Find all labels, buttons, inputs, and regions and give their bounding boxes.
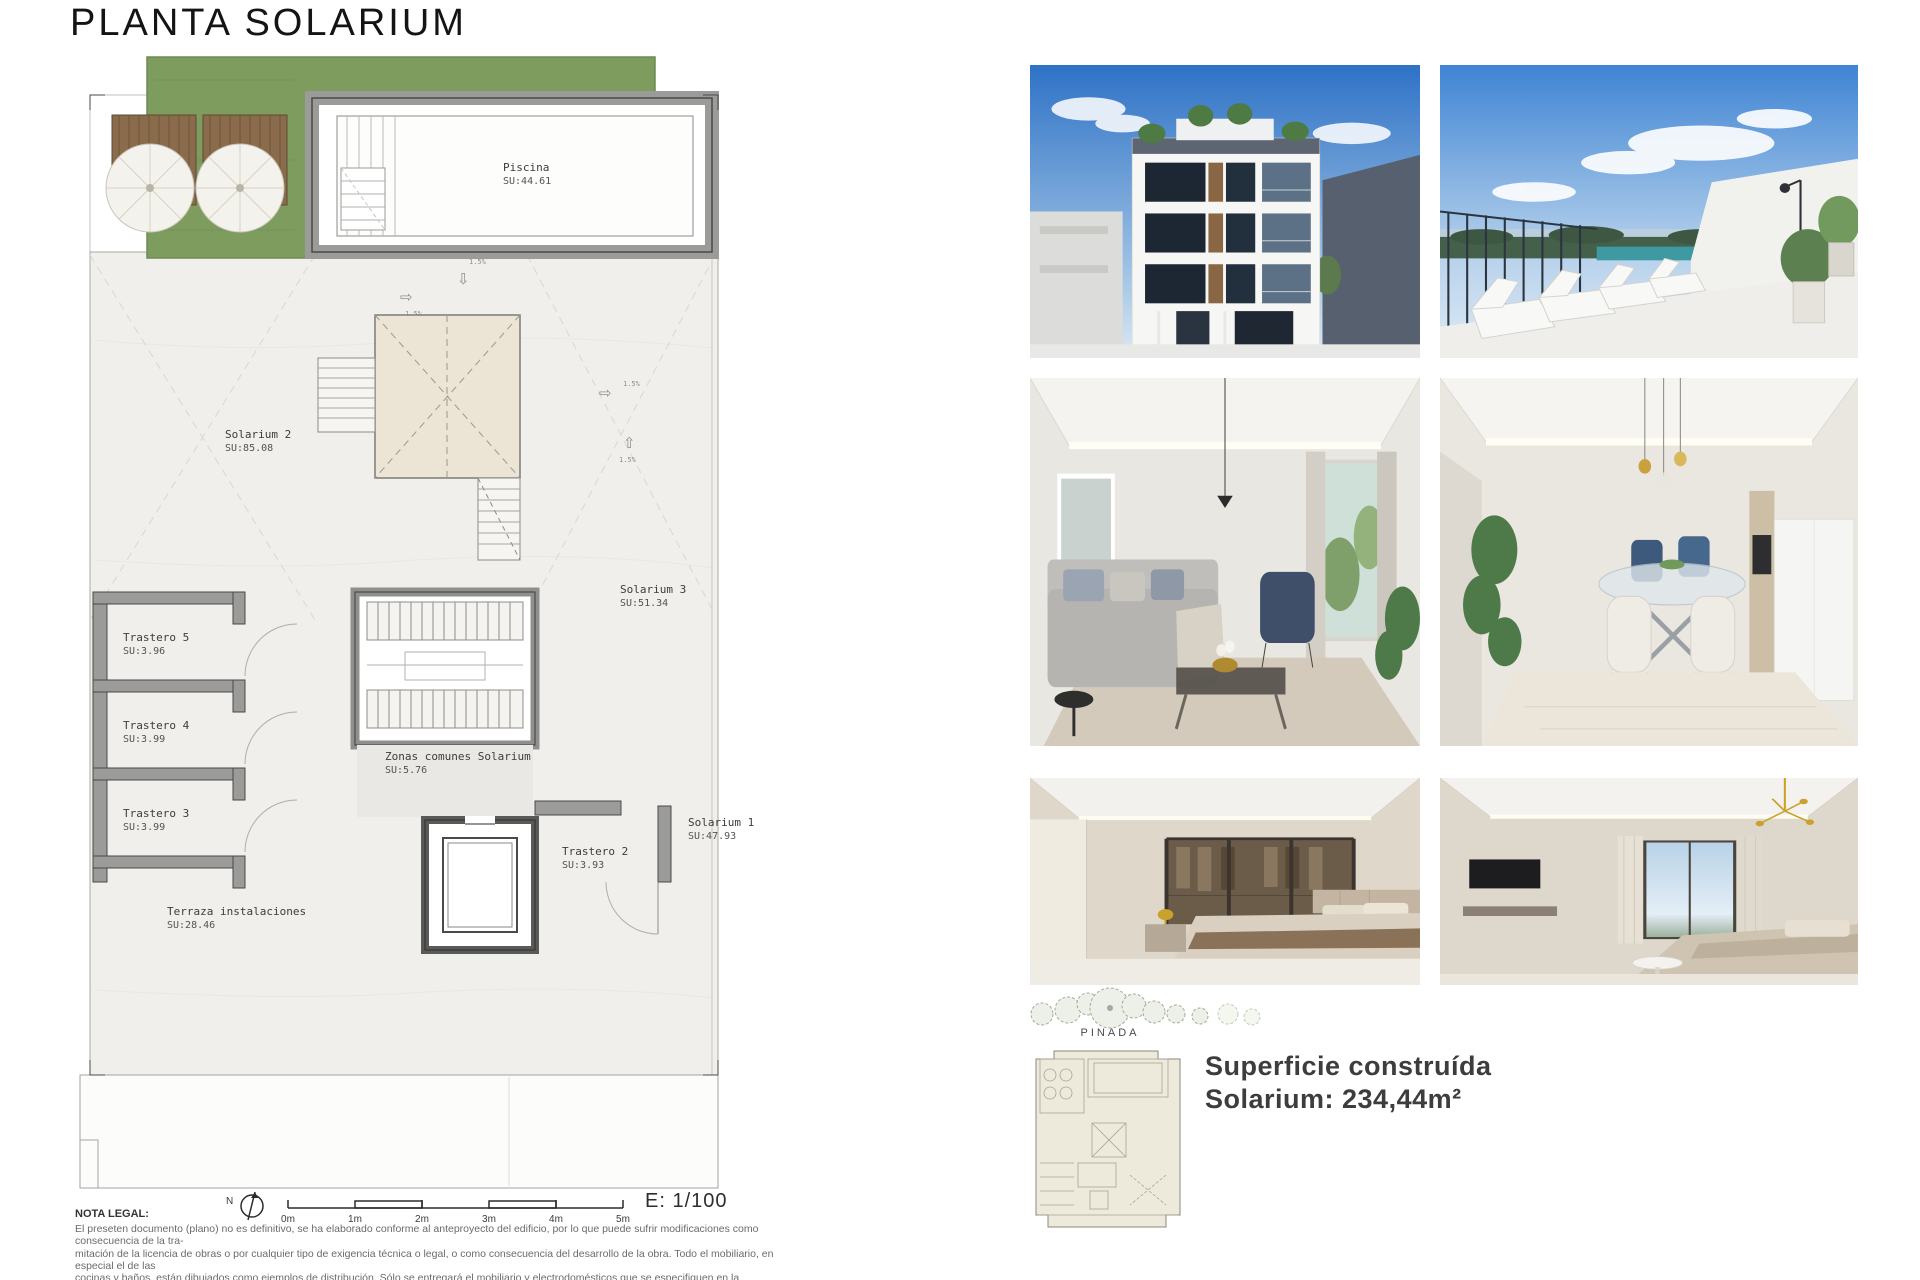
built-in-oven [1752, 535, 1771, 574]
legal-note: NOTA LEGAL: El preseten documento (plano… [75, 1208, 775, 1280]
room-label-zonas-comunes: Zonas comunes Solarium [385, 750, 531, 763]
floor [1440, 974, 1858, 985]
pool: Piscina SU:44.61 [312, 98, 712, 252]
room-label-piscina: Piscina [503, 161, 549, 174]
main-building [1132, 103, 1319, 358]
legal-heading: NOTA LEGAL: [75, 1208, 775, 1220]
svg-text:⇩: ⇩ [457, 270, 470, 288]
photo-rooftop-solarium [1440, 65, 1858, 358]
photo-living-room [1030, 378, 1420, 746]
room-area-terraza: SU:28.46 [167, 920, 215, 931]
elevator [425, 816, 535, 950]
room-area-trastero4: SU:3.99 [123, 734, 165, 745]
window [1321, 461, 1385, 639]
svg-text:⇨: ⇨ [400, 288, 413, 306]
stair-run-left [318, 358, 375, 432]
summary-line1: Superficie construída [1205, 1050, 1492, 1083]
page-title: PLANTA SOLARIUM [70, 2, 467, 45]
room-area-trastero5: SU:3.96 [123, 646, 165, 657]
room-label-trastero4: Trastero 4 [123, 719, 190, 732]
floor [1482, 672, 1858, 746]
svg-text:N: N [226, 1196, 233, 1207]
room-area-solarium2: SU:85.08 [225, 443, 273, 454]
room-area-solarium1: SU:47.93 [688, 831, 736, 842]
svg-text:⇧: ⇧ [623, 434, 636, 452]
room-area-solarium3: SU:51.34 [620, 598, 668, 609]
svg-text:1.5%: 1.5% [469, 258, 487, 266]
room-area-zonas-comunes: SU:5.76 [385, 765, 427, 776]
svg-text:1.5%: 1.5% [623, 380, 641, 388]
neighbor-building-right [1323, 155, 1421, 358]
room-label-solarium3: Solarium 3 [620, 583, 686, 596]
room-label-trastero5: Trastero 5 [123, 631, 189, 644]
room-label-trastero3: Trastero 3 [123, 807, 189, 820]
window [1645, 841, 1735, 938]
floor [1030, 959, 1420, 985]
site-trees: PINADA [1028, 984, 1288, 1042]
wood-column [1749, 491, 1774, 700]
ceiling [1030, 778, 1420, 818]
ceiling [1440, 778, 1858, 817]
room-label-solarium1: Solarium 1 [688, 816, 754, 829]
ceiling [1440, 378, 1858, 442]
floor-plan-drawing: Piscina SU:44.61 ⇩ 1.5% ⇨ 1.5% ⇨ 1.5% ⇧ … [75, 40, 955, 1190]
legal-line: cocinas y baños, están dibujados como ej… [75, 1272, 775, 1280]
wall-art [1059, 476, 1113, 562]
room-label-terraza: Terraza instalaciones [167, 905, 306, 918]
legal-line: El preseten documento (plano) no es defi… [75, 1223, 775, 1248]
plan-sheet: PLANTA SOLARIUM [0, 0, 1920, 1280]
room-area-trastero2: SU:3.93 [562, 860, 604, 871]
room-area-trastero3: SU:3.99 [123, 822, 165, 833]
pool-steps [341, 168, 385, 230]
lower-terrace [80, 1075, 718, 1188]
stair-core [355, 592, 535, 745]
skylight [375, 315, 520, 478]
legal-line: mitación de la licencia de obras o por c… [75, 1248, 775, 1273]
photo-bedroom-dressing [1030, 778, 1420, 985]
svg-text:⇨: ⇨ [599, 384, 612, 402]
built-surface-summary: Superficie construída Solarium: 234,44m² [1205, 1050, 1492, 1116]
photo-building-facade [1030, 65, 1420, 358]
site-area-label: PINADA [1081, 1027, 1140, 1039]
curtain [1618, 836, 1643, 944]
photo-bedroom-window [1440, 778, 1858, 985]
photo-dining-kitchen [1440, 378, 1858, 746]
svg-text:1.5%: 1.5% [619, 456, 637, 464]
room-label-trastero2: Trastero 2 [562, 845, 628, 858]
room-area-piscina: SU:44.61 [503, 176, 551, 187]
curtain [1737, 836, 1762, 944]
room-label-solarium2: Solarium 2 [225, 428, 291, 441]
stair-run-right [478, 478, 520, 560]
mini-site-plan [1030, 1045, 1186, 1235]
summary-line2: Solarium: 234,44m² [1205, 1083, 1492, 1116]
